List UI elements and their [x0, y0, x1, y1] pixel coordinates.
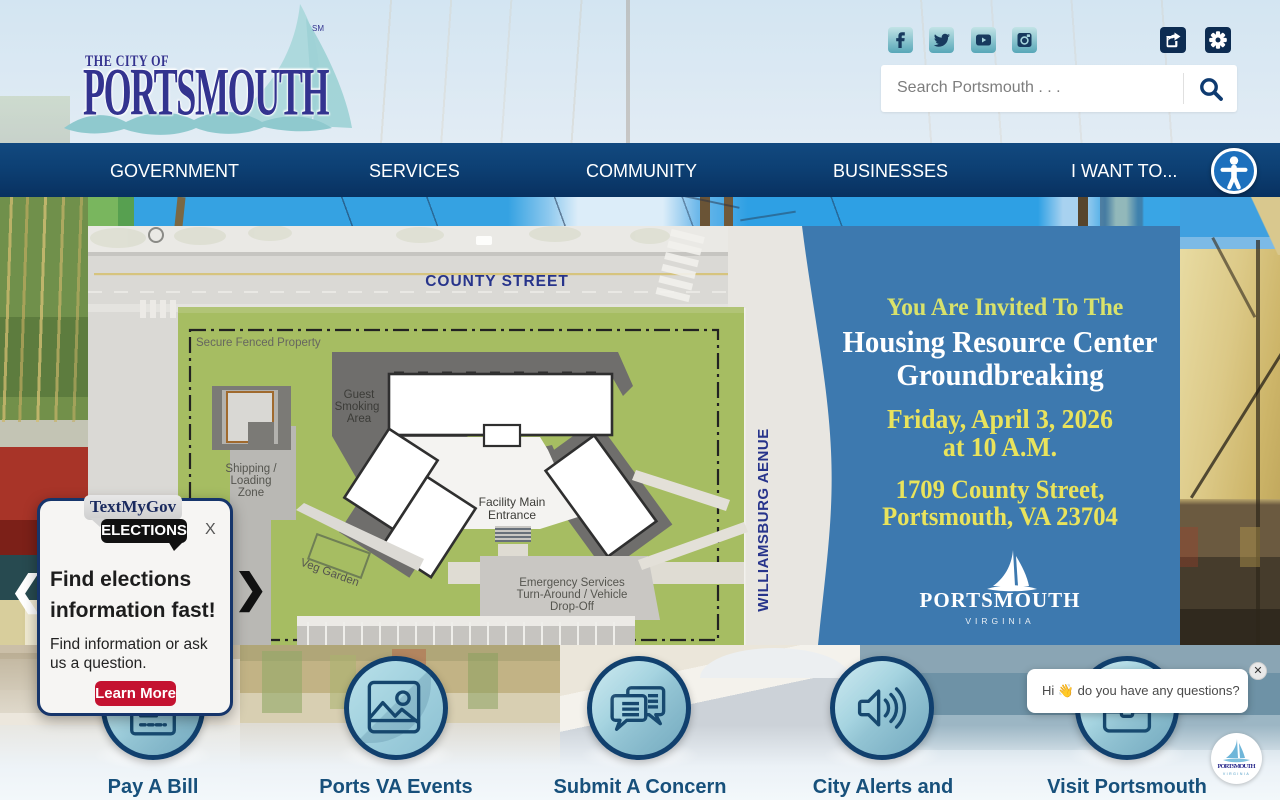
- svg-text:Turn-Around / Vehicle: Turn-Around / Vehicle: [517, 589, 628, 601]
- svg-text:COUNTY STREET: COUNTY STREET: [425, 273, 569, 290]
- svg-text:Zone: Zone: [238, 487, 264, 499]
- svg-text:WILLIAMSBURG AENUE: WILLIAMSBURG AENUE: [755, 428, 772, 611]
- svg-text:Secure Fenced Property: Secure Fenced Property: [196, 337, 321, 349]
- svg-text:Smoking: Smoking: [335, 401, 380, 413]
- svg-text:Drop-Off: Drop-Off: [550, 601, 595, 613]
- svg-text:Shipping /: Shipping /: [225, 463, 277, 475]
- svg-text:Entrance: Entrance: [488, 508, 536, 522]
- svg-text:Area: Area: [347, 413, 372, 425]
- svg-text:VIRGINIA: VIRGINIA: [1223, 772, 1250, 776]
- svg-text:PORTSMOUTH: PORTSMOUTH: [1218, 763, 1256, 770]
- svg-text:Facility Main: Facility Main: [479, 495, 546, 509]
- svg-text:Loading: Loading: [231, 475, 272, 487]
- svg-text:Guest: Guest: [344, 389, 375, 401]
- svg-text:Emergency Services: Emergency Services: [519, 577, 625, 589]
